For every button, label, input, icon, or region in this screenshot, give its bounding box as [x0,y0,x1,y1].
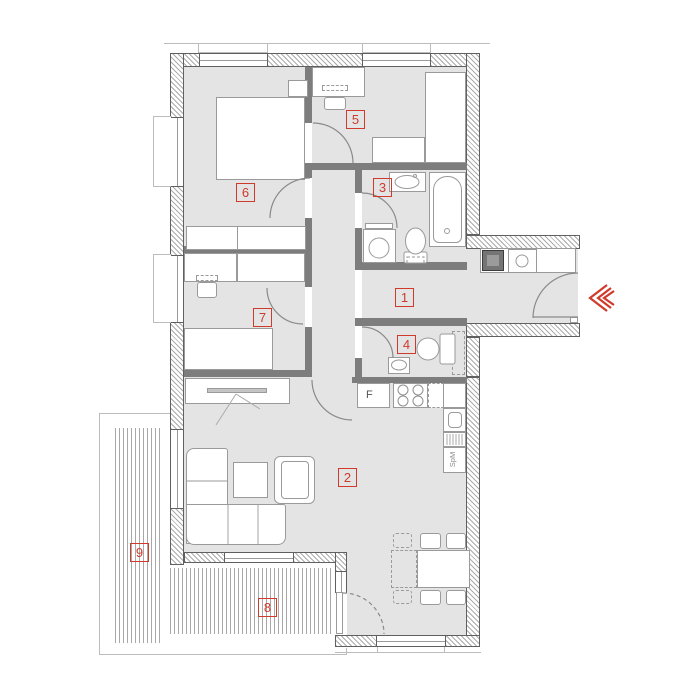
door-arc-living [312,380,352,420]
floor-plan: F SpM [0,0,700,700]
stove-burners [398,385,423,406]
room-label-9: 9 [130,543,149,562]
room-label-5: 5 [346,110,365,129]
room-label-1: 1 [395,288,414,307]
boiler-dial [516,255,528,267]
tv-direction-lines [216,394,260,425]
room-label-7: 7 [253,308,272,327]
room-label-8: 8 [258,598,277,617]
toilet-bowl [406,228,426,254]
door-arc-entrance [533,273,578,318]
bathtub-drain [445,229,450,234]
sink-faucet [414,175,417,178]
toilet-tank [440,334,455,364]
sofa-cushion-lines [187,481,258,544]
room-label-3: 3 [373,178,392,197]
drainer-lines [447,434,462,445]
entrance-arrow-icon [590,285,614,311]
sink-basin [392,360,407,370]
door-arc-bedroom5 [313,123,353,163]
door-arc-terrace [343,593,384,634]
plan-linework [0,0,700,700]
toilet-bowl [417,338,439,360]
washer-drum [369,238,389,258]
door-arc-bedroom6 [270,178,310,218]
door-arc-bathroom [362,193,397,228]
door-arc-bedroom7 [267,288,303,324]
room-label-4: 4 [397,335,416,354]
room-label-2: 2 [338,468,357,487]
room-label-6: 6 [236,183,255,202]
door-arc-wc [362,327,393,358]
